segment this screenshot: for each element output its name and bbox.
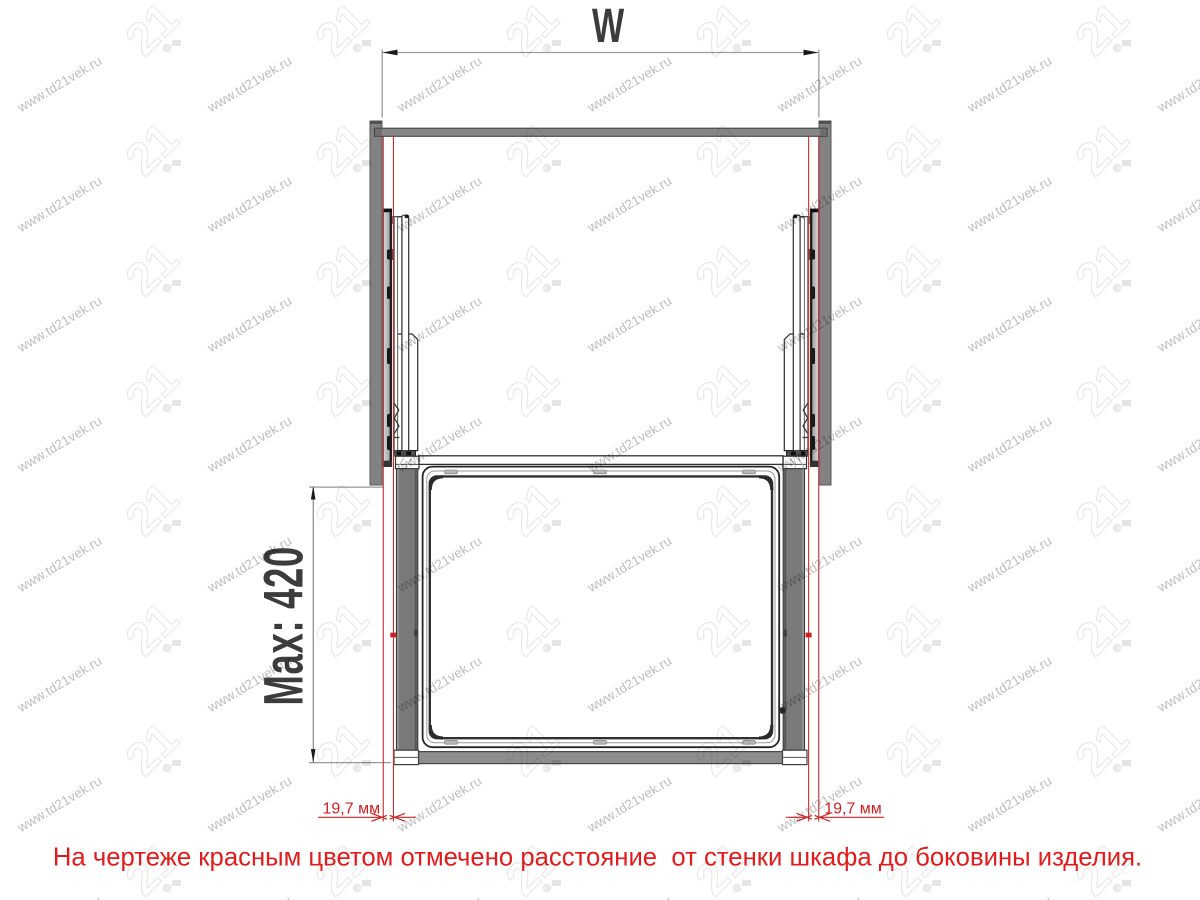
svg-text:19,7 мм: 19,7 мм [824,801,882,818]
svg-text:19,7 мм: 19,7 мм [323,801,381,818]
svg-text:На чертеже красным цветом отме: На чертеже красным цветом отмечено расст… [53,844,1142,872]
